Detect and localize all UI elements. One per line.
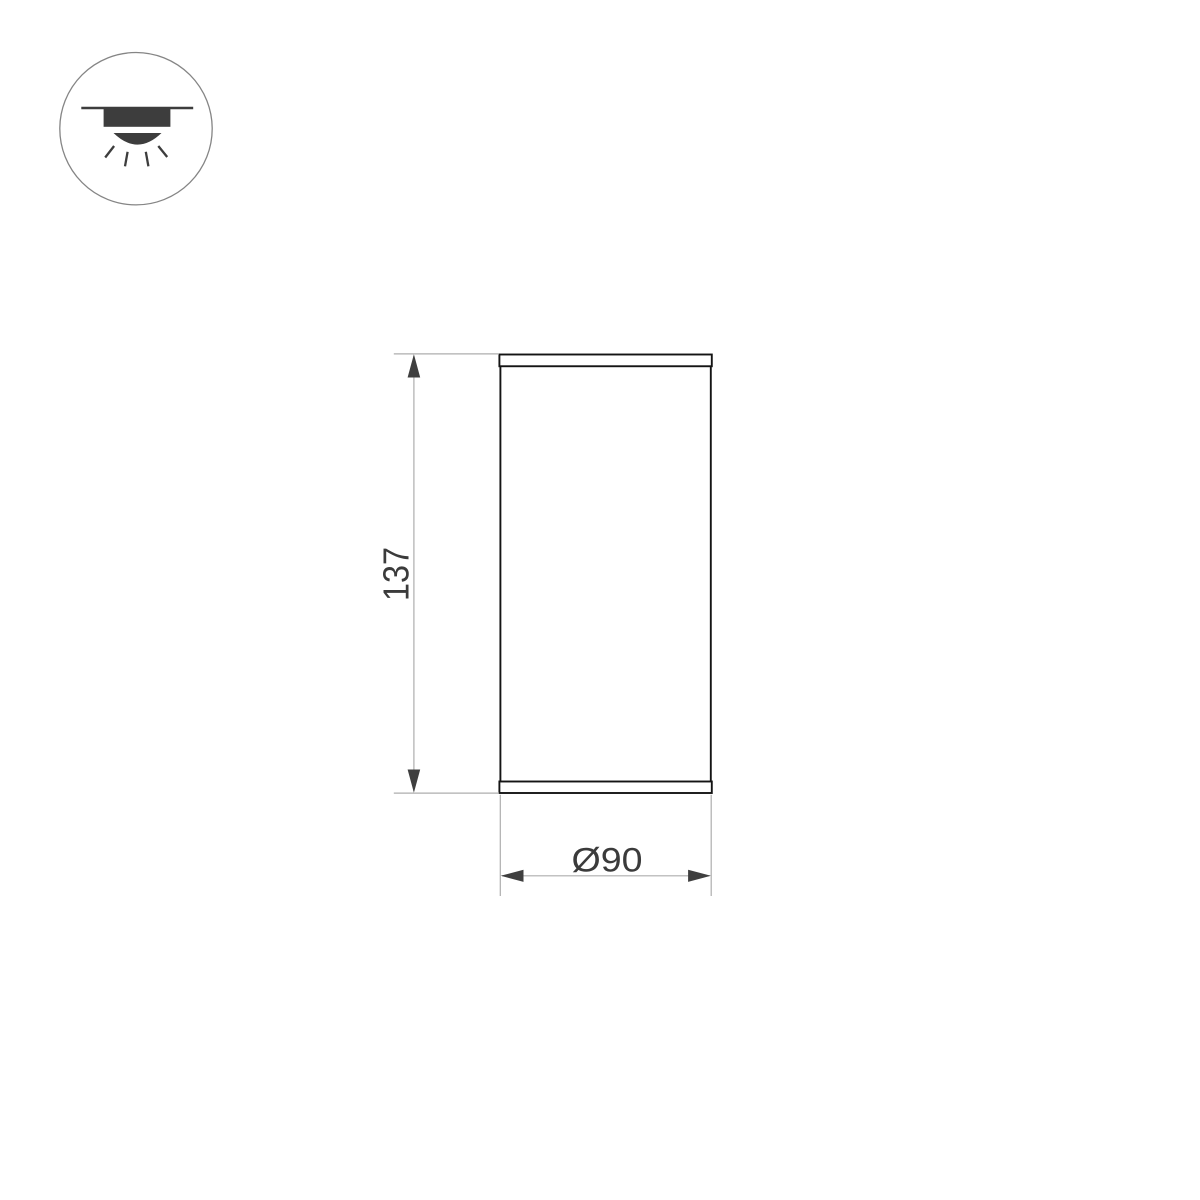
- svg-text:Ø90: Ø90: [572, 842, 643, 880]
- svg-text:137: 137: [376, 547, 417, 601]
